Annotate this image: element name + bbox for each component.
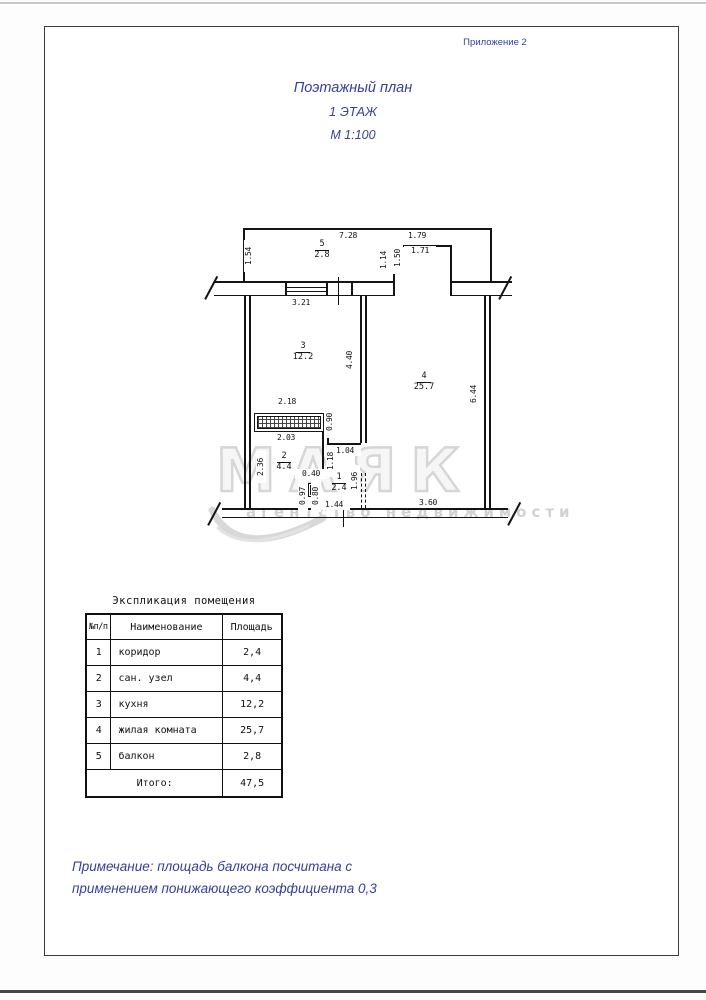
total-value: 47,5 bbox=[223, 770, 282, 798]
wall-segment bbox=[322, 432, 324, 473]
document-page: Приложение 2 Поэтажный план 1 ЭТАЖ М 1:1… bbox=[0, 0, 706, 1000]
room-label-3: 312.2 bbox=[285, 342, 321, 362]
wall-segment bbox=[214, 295, 395, 297]
wall-segment bbox=[222, 517, 508, 519]
cell-num: 2 bbox=[86, 666, 111, 692]
cell-num: 3 bbox=[86, 692, 111, 718]
wall-segment bbox=[484, 296, 486, 508]
room-label-5: 52.8 bbox=[304, 240, 340, 260]
room-area: 2.4 bbox=[321, 484, 357, 493]
wall-segment bbox=[243, 228, 492, 230]
dimension-label: 3.21 bbox=[285, 298, 317, 308]
dimension-label: 2.18 bbox=[271, 397, 303, 407]
dimension-label: 6.44 bbox=[469, 378, 479, 410]
room-area: 2.8 bbox=[304, 251, 340, 260]
wall-segment bbox=[365, 296, 367, 443]
room-area: 25.7 bbox=[406, 383, 442, 392]
wall-segment bbox=[338, 277, 339, 305]
cell-name: балкон bbox=[111, 744, 223, 770]
wall-segment bbox=[285, 281, 287, 296]
cell-area: 12,2 bbox=[223, 692, 282, 718]
cell-area: 25,7 bbox=[223, 718, 282, 744]
wall-segment bbox=[450, 245, 452, 296]
wall-segment bbox=[498, 276, 512, 300]
dimension-label: 4.40 bbox=[345, 344, 355, 376]
wall-segment bbox=[490, 228, 492, 282]
wall-segment bbox=[489, 296, 491, 508]
col-header-num: №п/п bbox=[86, 614, 111, 640]
wall-segment bbox=[222, 508, 508, 510]
wall-segment bbox=[360, 296, 362, 443]
footnote: Примечание: площадь балкона посчитана с … bbox=[72, 856, 377, 900]
floor-plan: МАЯК агентство недвижимости 7.281.791.71… bbox=[0, 0, 706, 1000]
table-header-row: №п/п Наименование Площадь bbox=[86, 614, 282, 640]
dimension-label: 0.90 bbox=[325, 406, 335, 438]
wall-segment bbox=[450, 295, 512, 297]
dimension-label: 1.44 bbox=[318, 500, 350, 510]
dimension-label: 1.79 bbox=[401, 231, 433, 241]
dimension-label: 0.97 bbox=[298, 480, 308, 512]
col-header-area: Площадь bbox=[223, 614, 282, 640]
cell-area: 4,4 bbox=[223, 666, 282, 692]
wall-segment bbox=[214, 281, 395, 283]
room-label-2: 24.4 bbox=[266, 452, 302, 472]
wall-segment bbox=[204, 276, 218, 300]
cell-num: 4 bbox=[86, 718, 111, 744]
explication-section: Экспликация помещения №п/п Наименование … bbox=[85, 595, 283, 798]
cell-num: 1 bbox=[86, 640, 111, 666]
cell-name: коридор bbox=[111, 640, 223, 666]
dimension-label: 1.54 bbox=[244, 240, 254, 272]
cell-num: 5 bbox=[86, 744, 111, 770]
table-row: 3 кухня 12,2 bbox=[86, 692, 282, 718]
cell-area: 2,4 bbox=[223, 640, 282, 666]
room-label-4: 425.7 bbox=[406, 372, 442, 392]
footnote-line2: применением понижающего коэффициента 0,3 bbox=[72, 878, 377, 900]
cell-name: жилая комната bbox=[111, 718, 223, 744]
room-label-1: 12.4 bbox=[321, 473, 357, 493]
wall-segment bbox=[244, 296, 246, 508]
dimension-label: 2.36 bbox=[256, 451, 266, 483]
cell-name: кухня bbox=[111, 692, 223, 718]
table-row: 4 жилая комната 25,7 bbox=[86, 718, 282, 744]
col-header-name: Наименование bbox=[111, 614, 223, 640]
wall-segment bbox=[285, 291, 327, 292]
dimension-label: 0.80 bbox=[311, 480, 321, 512]
dimension-label: 3.60 bbox=[412, 498, 444, 508]
table-row: 5 балкон 2,8 bbox=[86, 744, 282, 770]
wall-segment bbox=[285, 287, 327, 288]
dimension-label: 1.71 bbox=[404, 246, 436, 256]
dimension-label: 1.14 bbox=[379, 244, 389, 276]
wall-segment bbox=[450, 281, 512, 283]
table-row: 2 сан. узел 4,4 bbox=[86, 666, 282, 692]
wall-segment bbox=[326, 281, 328, 296]
opening-dashed-line bbox=[365, 473, 366, 508]
room-area: 4.4 bbox=[266, 463, 302, 472]
cell-name: сан. узел bbox=[111, 666, 223, 692]
shaft-hatch bbox=[257, 416, 321, 429]
explication-title: Экспликация помещения bbox=[85, 595, 283, 607]
wall-segment bbox=[249, 296, 251, 508]
room-area: 12.2 bbox=[285, 353, 321, 362]
wall-segment bbox=[351, 281, 353, 296]
cell-area: 2,8 bbox=[223, 744, 282, 770]
table-row: 1 коридор 2,4 bbox=[86, 640, 282, 666]
dimension-label: 2.03 bbox=[270, 433, 302, 443]
ventilation-shaft bbox=[254, 413, 324, 432]
dimension-label: 1.50 bbox=[393, 242, 403, 274]
explication-table: №п/п Наименование Площадь 1 коридор 2,4 … bbox=[85, 613, 283, 798]
total-label: Итого: bbox=[86, 770, 223, 798]
footnote-line1: Примечание: площадь балкона посчитана с bbox=[72, 856, 377, 878]
opening-dashed-line bbox=[361, 473, 362, 508]
table-total-row: Итого: 47,5 bbox=[86, 770, 282, 798]
